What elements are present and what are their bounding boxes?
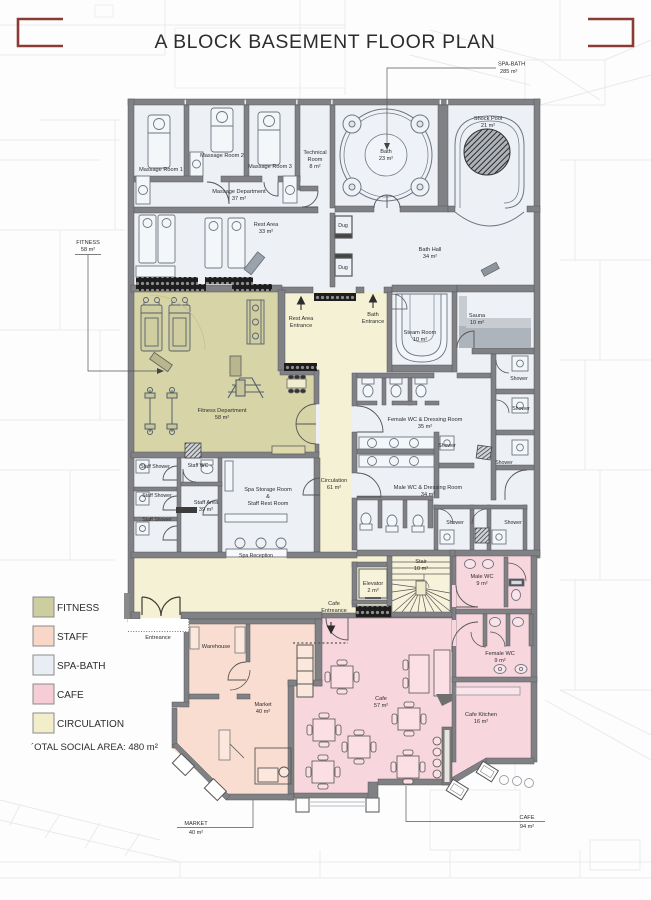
svg-text:Staff Shower: Staff Shower <box>140 464 170 470</box>
svg-text:285 m²: 285 m² <box>500 69 518 75</box>
svg-text:Entrance: Entrance <box>362 319 384 325</box>
svg-text:Entreance: Entreance <box>321 608 347 614</box>
svg-text:Warehouse: Warehouse <box>202 644 230 650</box>
svg-text:Elevator: Elevator <box>363 581 384 587</box>
svg-text:34 m²: 34 m² <box>423 254 437 260</box>
svg-text:Shower: Shower <box>438 443 456 449</box>
svg-text:CAFE: CAFE <box>520 815 535 821</box>
svg-text:Entreance: Entreance <box>145 635 171 641</box>
svg-text:61 m²: 61 m² <box>327 485 341 491</box>
svg-text:Cafe: Cafe <box>328 601 340 607</box>
svg-text:Staff Area: Staff Area <box>194 500 219 506</box>
svg-text:Staff WC: Staff WC <box>188 463 209 469</box>
svg-text:SPA-BATH: SPA-BATH <box>498 62 525 68</box>
svg-text:9 m²: 9 m² <box>494 658 505 664</box>
svg-text:Rest Area: Rest Area <box>289 316 314 322</box>
svg-text:Steam Room: Steam Room <box>404 330 437 336</box>
svg-text:Shower: Shower <box>446 520 464 526</box>
svg-text:FITNESS: FITNESS <box>57 603 100 614</box>
svg-text:Massage Room 1: Massage Room 1 <box>139 167 183 173</box>
svg-text:STAFF: STAFF <box>57 632 88 643</box>
svg-text:SPA-BATH: SPA-BATH <box>57 661 106 672</box>
svg-text:34 m²: 34 m² <box>421 492 435 498</box>
svg-text:´OTAL SOCIAL AREA: 480 m²: ´OTAL SOCIAL AREA: 480 m² <box>31 742 158 753</box>
svg-text:Staff Shower: Staff Shower <box>142 493 172 499</box>
svg-text:58 m²: 58 m² <box>81 247 95 253</box>
svg-text:Bath: Bath <box>367 312 379 318</box>
svg-text:35 m²: 35 m² <box>418 424 432 430</box>
svg-text:Dug: Dug <box>338 223 348 229</box>
svg-text:Staff Shower: Staff Shower <box>142 517 172 523</box>
svg-text:23 m²: 23 m² <box>379 156 393 162</box>
svg-text:Dug: Dug <box>338 265 348 271</box>
svg-text:Female WC: Female WC <box>485 651 515 657</box>
svg-text:40 m²: 40 m² <box>256 709 270 715</box>
svg-text:Shock Pool: Shock Pool <box>474 116 502 122</box>
svg-text:Shower: Shower <box>512 406 530 412</box>
svg-text:Male WC: Male WC <box>471 574 494 580</box>
svg-text:&: & <box>266 494 270 500</box>
svg-text:8 m²: 8 m² <box>309 164 320 170</box>
svg-text:CIRCULATION: CIRCULATION <box>57 719 124 730</box>
svg-text:Market: Market <box>254 702 272 708</box>
svg-text:2 m³: 2 m³ <box>367 588 378 594</box>
svg-text:58 m²: 58 m² <box>215 415 229 421</box>
svg-text:Cafe: Cafe <box>375 696 387 702</box>
svg-text:Female WC & Dressing Room: Female WC & Dressing Room <box>388 417 463 423</box>
svg-text:94 m²: 94 m² <box>520 824 534 830</box>
svg-text:MARKET: MARKET <box>184 821 208 827</box>
svg-text:Shower: Shower <box>510 376 528 382</box>
svg-text:57 m²: 57 m² <box>374 703 388 709</box>
svg-text:37 m²: 37 m² <box>232 196 246 202</box>
svg-text:16 m²: 16 m² <box>474 719 488 725</box>
svg-text:Bath: Bath <box>380 149 392 155</box>
svg-text:Bath Hall: Bath Hall <box>419 247 442 253</box>
svg-text:39 m²: 39 m² <box>199 507 213 513</box>
svg-text:Massage Room 2: Massage Room 2 <box>200 153 244 159</box>
svg-text:Male WC & Dressing Room: Male WC & Dressing Room <box>394 485 463 491</box>
svg-text:40 m²: 40 m² <box>189 830 203 836</box>
svg-text:Staff Rest Room: Staff Rest Room <box>248 501 289 507</box>
svg-text:Shower: Shower <box>495 460 513 466</box>
svg-text:Stair: Stair <box>415 559 427 565</box>
svg-text:Spa Storage Room: Spa Storage Room <box>244 487 292 493</box>
svg-text:Fitness Department: Fitness Department <box>198 408 247 414</box>
svg-text:Massage Department: Massage Department <box>212 189 266 195</box>
svg-text:Technical: Technical <box>303 150 326 156</box>
svg-text:CAFE: CAFE <box>57 690 84 701</box>
svg-text:9 m²: 9 m² <box>476 581 487 587</box>
svg-text:10 m²: 10 m² <box>413 337 427 343</box>
svg-text:10 m²: 10 m² <box>470 320 484 326</box>
svg-text:33 m²: 33 m² <box>259 229 273 235</box>
svg-text:21 m²: 21 m² <box>481 123 495 129</box>
svg-text:Circulation: Circulation <box>321 478 347 484</box>
svg-text:Shower: Shower <box>504 520 522 526</box>
svg-text:Cafe Kitchen: Cafe Kitchen <box>465 712 497 718</box>
svg-text:Spa Reception: Spa Reception <box>239 553 273 559</box>
svg-text:Rest Area: Rest Area <box>254 222 279 228</box>
svg-text:A BLOCK BASEMENT FLOOR PLAN: A BLOCK BASEMENT FLOOR PLAN <box>155 31 496 53</box>
svg-text:10 m²: 10 m² <box>414 566 428 572</box>
svg-text:Massage Room 3: Massage Room 3 <box>248 164 292 170</box>
svg-text:Sauna: Sauna <box>469 313 486 319</box>
svg-text:Entrance: Entrance <box>290 323 312 329</box>
svg-text:Room: Room <box>308 157 323 163</box>
svg-text:FITNESS: FITNESS <box>76 240 100 246</box>
